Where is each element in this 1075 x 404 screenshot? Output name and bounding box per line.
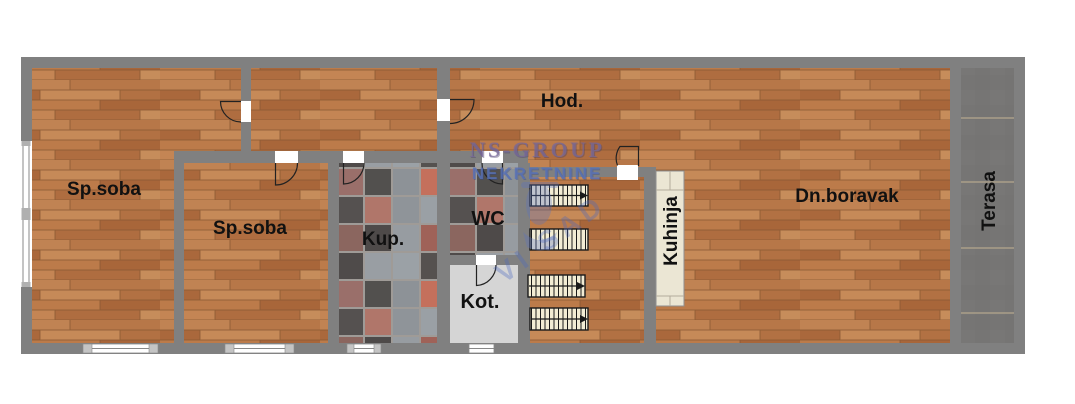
svg-text:Hod.: Hod.: [541, 91, 583, 112]
svg-text:Dn.boravak: Dn.boravak: [795, 186, 899, 207]
svg-text:Kuhinja: Kuhinja: [661, 196, 682, 266]
svg-text:NS-GROUP: NS-GROUP: [470, 137, 605, 162]
svg-text:NEKRETNINE: NEKRETNINE: [472, 164, 603, 183]
svg-text:Sp.soba: Sp.soba: [67, 179, 141, 200]
svg-text:WC: WC: [471, 208, 504, 230]
svg-text:Kup.: Kup.: [362, 229, 404, 250]
svg-text:Terasa: Terasa: [979, 171, 1000, 231]
svg-text:Kot.: Kot.: [461, 291, 500, 313]
svg-text:Sp.soba: Sp.soba: [213, 218, 287, 239]
